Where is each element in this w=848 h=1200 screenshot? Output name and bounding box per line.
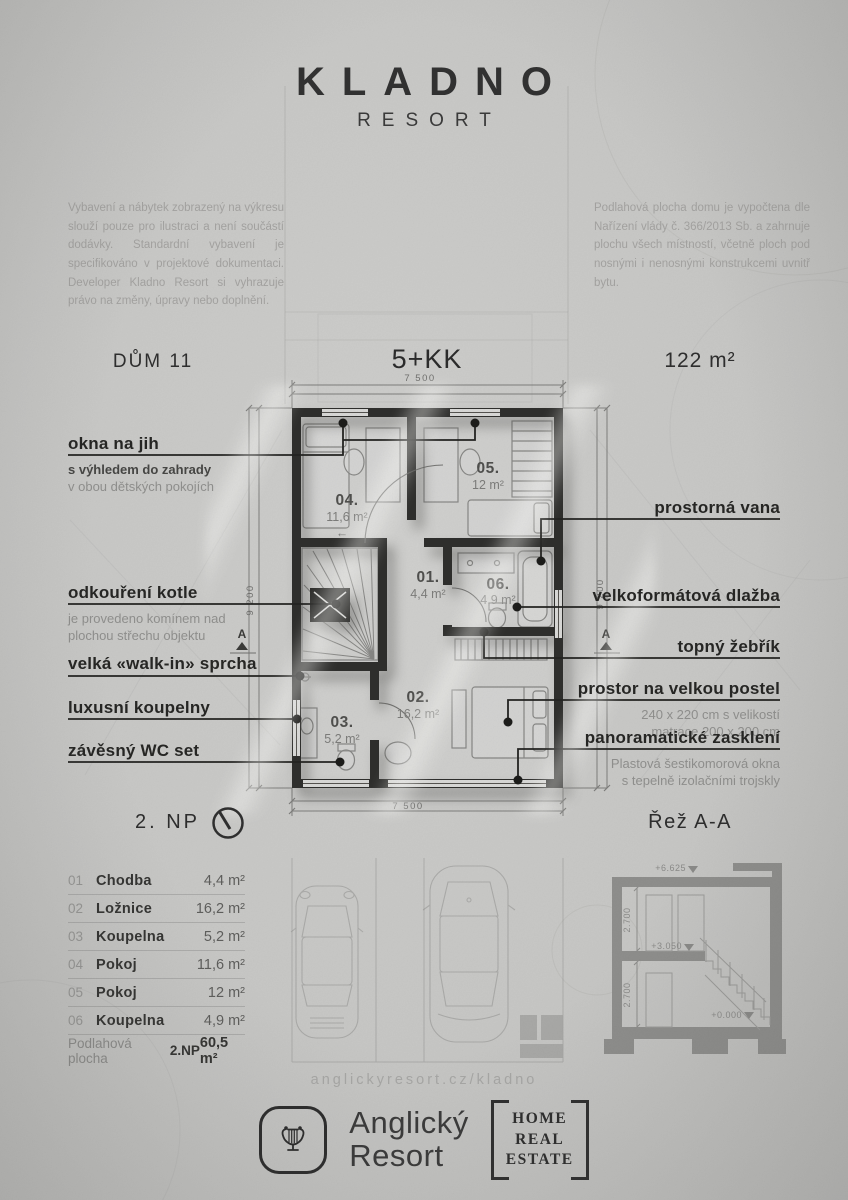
disclaimer-left: Vybavení a nábytek zobrazený na výkresu … [68,199,284,311]
badge-line: ESTATE [506,1150,574,1171]
unit-area: 122 m² [640,349,760,373]
annotation-sub: Plastová šestikomorová okna [585,756,780,773]
table-row: 01 Chodba 4,4 m² [68,867,245,895]
annotation-okna-na-jih: okna na jih s výhledem do zahrady v obou… [68,434,214,495]
svg-text:03.: 03. [330,714,353,731]
brand-line-1: Anglický [349,1107,468,1140]
svg-text:11,6 m²: 11,6 m² [326,510,367,524]
room-number: 06 [68,1013,96,1028]
section-drawing: +6.625 +3.050 +0.000 2.700 2.700 [604,863,786,1054]
svg-text:5,2 m²: 5,2 m² [324,732,359,746]
svg-text:02.: 02. [406,689,429,706]
annotation-zavesny-wc-set: závěsný WC set [68,741,199,762]
svg-text:←: ← [336,526,349,540]
annotation-prostorna-vana: prostorná vana [654,498,780,519]
house-number: DŮM 11 [95,351,211,373]
room-number: 03 [68,929,96,944]
annotation-title: velká «walk-in» sprcha [68,654,257,675]
total-floor: 2.NP [170,1043,200,1058]
resort-subtitle: RESORT [0,110,848,132]
table-row: 06 Koupelna 4,9 m² [68,1007,245,1035]
svg-text:A: A [602,627,611,641]
table-row: 02 Ložnice 16,2 m² [68,895,245,923]
table-total-row: Podlahová plocha 2.NP 60,5 m² [68,1035,245,1066]
badge-line: HOME [512,1109,567,1130]
car-top-view-ghost [291,866,515,1042]
room-area: 16,2 m² [196,901,245,917]
disclaimer-right: Podlahová plocha domu je vypočtena dle N… [594,199,810,292]
svg-text:05.: 05. [476,460,499,477]
svg-text:+3.050: +3.050 [651,941,682,951]
annotation-odkoureni-kotle: odkouření kotle je provedeno komínem nad… [68,583,226,644]
annotation-title: okna na jih [68,434,214,455]
svg-text:4,4 m²: 4,4 m² [410,587,445,601]
room-name: Pokoj [96,985,137,1001]
section-marker-a-left: A [230,627,256,653]
badge-line: REAL [515,1130,564,1151]
section-cut-label: Řež A-A [648,811,732,834]
annotation-title: velkoformátová dlažba [593,586,780,607]
home-real-estate-badge: HOME REAL ESTATE [491,1100,589,1180]
svg-text:A: A [238,627,247,641]
website-url: anglickyresort.cz/kladno [0,1072,848,1088]
room-name: Pokoj [96,957,137,973]
dim-width-bottom: 7 500 [392,801,423,812]
svg-text:12 m²: 12 m² [472,478,504,492]
room-area: 4,9 m² [204,1013,245,1029]
annotation-title: závěsný WC set [68,741,199,762]
room-name: Ložnice [96,901,152,917]
unit-layout: 5+KK [327,344,527,375]
annotation-title: odkouření kotle [68,583,226,604]
dim-height-left: 9 200 [245,584,256,615]
room-area: 5,2 m² [204,929,245,945]
brand-row: Anglický Resort HOME REAL ESTATE [0,1100,848,1180]
annotation-luxusni-koupelny: luxusní koupelny [68,698,210,719]
room-name: Koupelna [96,1013,164,1029]
annotation-sub: je provedeno komínem nad [68,611,226,628]
annotation-sub: s výhledem do zahrady [68,462,214,479]
annotation-title: panoramatické zasklení [585,728,780,749]
annotation-panoramaticke-zaskleni: panoramatické zasklení Plastová šestikom… [585,728,780,789]
annotation-topny-zebrik: topný žebřík [677,637,780,658]
room-area-table: 01 Chodba 4,4 m² 02 Ložnice 16,2 m² 03 K… [68,867,245,1066]
room-number: 05 [68,985,96,1000]
svg-text:06.: 06. [486,576,509,593]
svg-text:+0.000: +0.000 [711,1010,742,1020]
room-area: 11,6 m² [197,957,245,973]
svg-text:+6.625: +6.625 [655,863,686,873]
room-name: Koupelna [96,929,164,945]
room-number: 02 [68,901,96,916]
table-row: 04 Pokoj 11,6 m² [68,951,245,979]
table-row: 03 Koupelna 5,2 m² [68,923,245,951]
svg-text:2.700: 2.700 [622,982,632,1007]
room-area: 12 m² [208,985,245,1001]
svg-text:01.: 01. [416,569,439,586]
annotation-velkoformatova-dlazba: velkoformátová dlažba [593,586,780,607]
annotation-sub: v obou dětských pokojích [68,479,214,496]
lyre-icon [273,1120,313,1160]
svg-text:4,9 m²: 4,9 m² [480,593,515,607]
table-row: 05 Pokoj 12 m² [68,979,245,1007]
annotation-title: prostorná vana [654,498,780,519]
annotation-title: luxusní koupelny [68,698,210,719]
annotation-walk-in-sprcha: velká «walk-in» sprcha [68,654,257,675]
annotation-title: prostor na velkou postel [578,679,780,700]
room-area: 4,4 m² [204,873,245,889]
annotation-title: topný žebřík [677,637,780,658]
svg-text:16,2 m²: 16,2 m² [397,707,439,721]
section-marker-a-right: A [594,627,620,653]
brand-line-2: Resort [349,1140,468,1173]
brand-name: Anglický Resort [349,1107,468,1172]
room-name: Chodba [96,873,152,889]
total-area: 60,5 m² [200,1035,245,1067]
north-compass-icon [210,805,246,841]
svg-text:04.: 04. [335,492,358,509]
floor-plan-poster: 7 500 7 500 9 200 9 200 A A [0,0,848,1200]
annotation-sub: plochou střechu objektu [68,628,226,645]
annotation-sub: s tepelně izolačními trojskly [585,773,780,790]
room-number: 01 [68,873,96,888]
floor-level-label: 2. NP [88,811,200,834]
svg-text:2.700: 2.700 [622,907,632,932]
resort-title: KLADNO [0,60,848,105]
room-number: 04 [68,957,96,972]
lyre-logo-icon [259,1106,327,1174]
annotation-sub: 240 x 220 cm s velikostí [578,707,780,724]
total-label: Podlahová plocha [68,1036,165,1066]
storage-boxes-ghost [520,1015,563,1058]
